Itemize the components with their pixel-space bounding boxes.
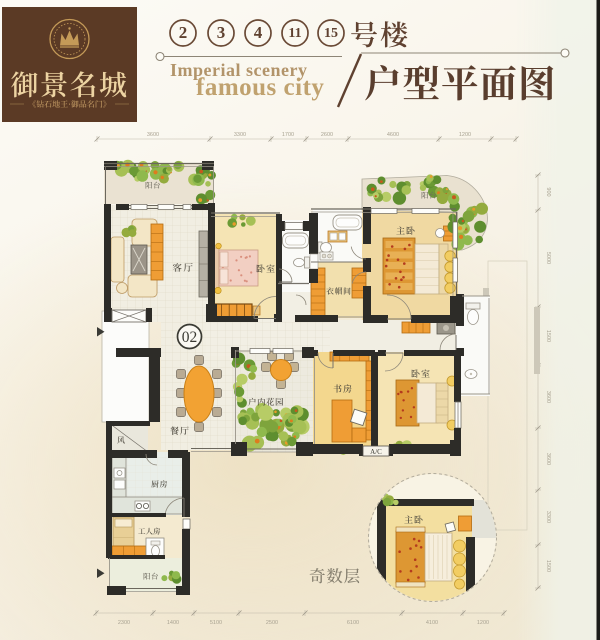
svg-text:2: 2 (179, 23, 188, 42)
svg-text:famous city: famous city (196, 74, 324, 101)
svg-text:4100: 4100 (426, 620, 438, 626)
svg-text:1700: 1700 (282, 132, 294, 138)
svg-text:1500: 1500 (545, 330, 551, 342)
svg-text:3300: 3300 (545, 511, 551, 523)
svg-text:02: 02 (182, 329, 198, 346)
svg-text:4600: 4600 (387, 132, 399, 138)
svg-text:5000: 5000 (545, 252, 551, 264)
svg-text:5100: 5100 (210, 620, 222, 626)
svg-text:3300: 3300 (234, 132, 246, 138)
svg-text:2300: 2300 (118, 620, 130, 626)
svg-text:1200: 1200 (459, 132, 471, 138)
svg-text:A/C: A/C (370, 448, 382, 456)
svg-text:2600: 2600 (321, 132, 333, 138)
svg-text:1200: 1200 (477, 620, 489, 626)
svg-text:3600: 3600 (545, 391, 551, 403)
svg-text:3600: 3600 (147, 132, 159, 138)
svg-text:6100: 6100 (347, 620, 359, 626)
svg-text:3600: 3600 (545, 453, 551, 465)
svg-text:3: 3 (217, 23, 226, 42)
svg-text:11: 11 (288, 26, 301, 41)
svg-text:900: 900 (545, 187, 551, 196)
svg-text:1500: 1500 (545, 560, 551, 572)
svg-text:1400: 1400 (167, 620, 179, 626)
svg-text:4: 4 (254, 23, 263, 42)
svg-text:15: 15 (324, 26, 338, 41)
svg-text:2500: 2500 (266, 620, 278, 626)
